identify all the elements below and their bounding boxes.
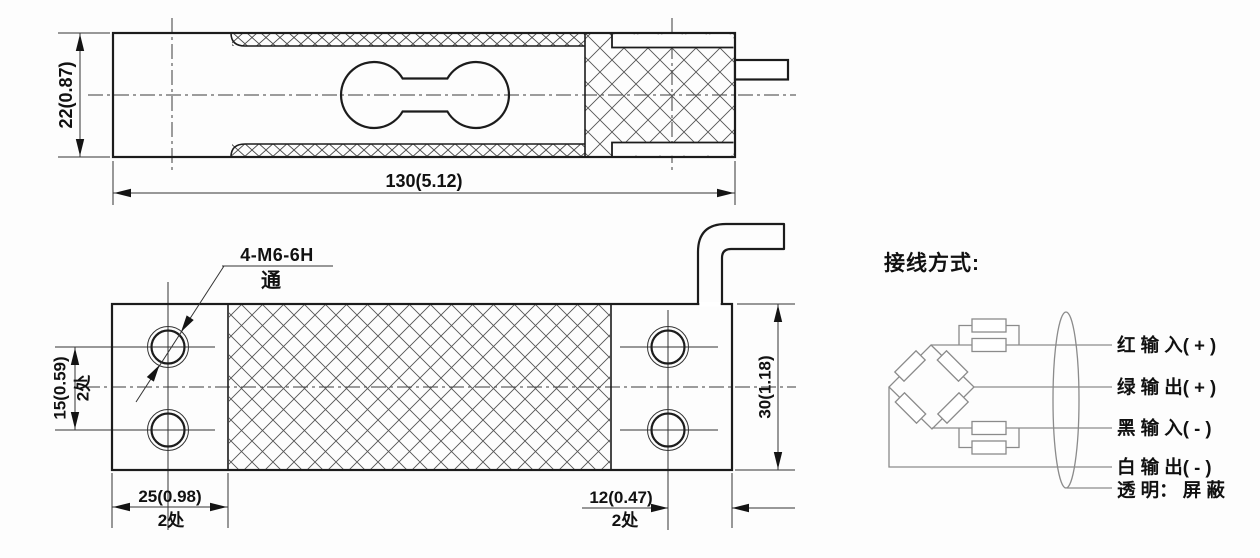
right-end-places-text: 2处 xyxy=(612,510,639,530)
dim-hole-pitch-15: 15(0.59) 2处 xyxy=(51,347,93,430)
red-input-wire xyxy=(931,319,1112,352)
wire-label-black-input: 黑 输 入( - ) xyxy=(1117,418,1212,439)
load-cell-drawing-page: 22(0.87) 130(5.12) xyxy=(0,0,1260,558)
dim-left-end-25: 25(0.98) 2处 xyxy=(112,473,228,530)
compensation-resistor xyxy=(972,422,1006,435)
cable-stub xyxy=(735,60,788,80)
wire-label-red-input: 红 输 入( + ) xyxy=(1117,335,1216,356)
dim-length-130: 130(5.12) xyxy=(113,161,735,205)
hole-pitch-dim-text: 15(0.59) xyxy=(51,356,70,419)
left-end-places-text: 2处 xyxy=(158,510,185,530)
thread-callout-text: 4-M6-6H xyxy=(240,245,314,265)
wire-label-white-output: 白 输 出( - ) xyxy=(1117,457,1212,478)
strain-gauges xyxy=(895,351,968,423)
wiring-title: 接线方式: xyxy=(884,251,980,275)
plan-view: 4-M6-6H 通 15(0.59) 2处 30(1.18) xyxy=(51,224,797,530)
plan-hatch-area xyxy=(229,305,610,469)
callout-leader-line xyxy=(136,266,224,402)
wiring-diagram: 接线方式: 红 输 入( + ) 绿 输 xyxy=(884,251,1225,501)
cable-sheath-ellipse xyxy=(1053,312,1079,488)
compensation-resistor xyxy=(972,339,1006,352)
bottom-seal-strip-hatch xyxy=(232,144,585,157)
hole-pitch-places-text: 2处 xyxy=(73,374,93,401)
right-end-dim-text: 12(0.47) xyxy=(589,488,652,507)
wire-label-shield: 透 明： 屏 蔽 xyxy=(1117,480,1225,501)
technical-drawing-canvas: 22(0.87) 130(5.12) xyxy=(0,0,1260,558)
width-dim-text: 30(1.18) xyxy=(756,355,775,418)
dim-right-end-12: 12(0.47) 2处 xyxy=(582,473,795,530)
compensation-resistor xyxy=(972,319,1006,332)
cable-elbow xyxy=(698,224,784,306)
length-dim-text: 130(5.12) xyxy=(385,171,462,191)
left-end-dim-text: 25(0.98) xyxy=(138,487,201,506)
wire-label-green-output: 绿 输 出( + ) xyxy=(1117,377,1216,398)
black-input-wire xyxy=(932,422,1112,455)
wire-labels: 红 输 入( + ) 绿 输 出( + ) 黑 输 入( - ) 白 输 出( … xyxy=(1117,335,1225,501)
bridge-diamond xyxy=(889,345,974,429)
compensation-resistor xyxy=(972,441,1006,454)
height-dim-text: 22(0.87) xyxy=(56,61,76,128)
sealed-end-hatch xyxy=(585,34,734,156)
thread-through-text: 通 xyxy=(261,269,281,292)
top-seal-strip-hatch xyxy=(232,34,585,47)
side-view: 22(0.87) 130(5.12) xyxy=(56,18,796,205)
